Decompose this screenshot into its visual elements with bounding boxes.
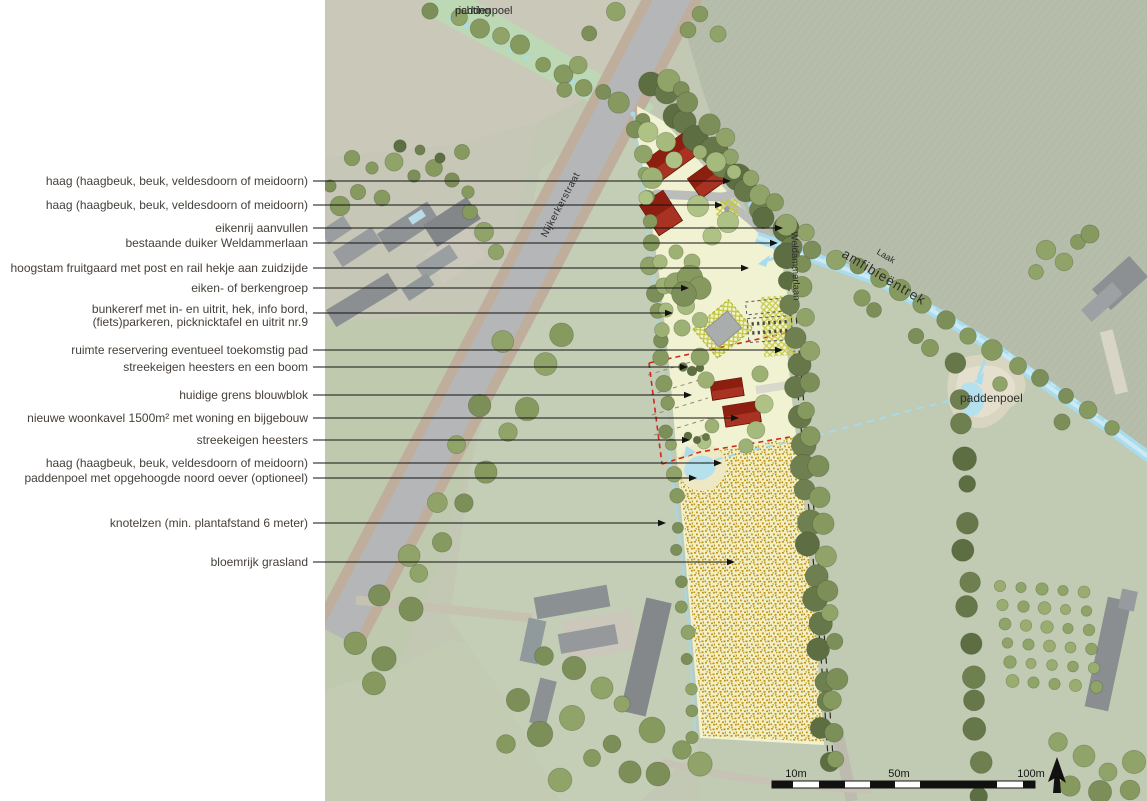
annotation-label-line: streekeigen heesters en een boom [0,361,308,374]
annotation-label: streekeigen heesters en een boom [0,361,308,374]
annotation-label-line: huidige grens blouwblok [0,389,308,402]
annotation-label-line: bunkererf met in- en uitrit, hek, info b… [0,303,308,316]
annotation-label: paddenpoel met opgehoogde noord oever (o… [0,472,308,485]
annotation-label-line: streekeigen heesters [0,434,308,447]
annotation-label-line: hoogstam fruitgaard met post en rail hek… [0,262,308,275]
annotation-label-line: ruimte reservering eventueel toekomstig … [0,344,308,357]
annotation-label-line: haag (haagbeuk, beuk, veldesdoorn of mei… [0,175,308,188]
annotation-label: knotelzen (min. plantafstand 6 meter) [0,517,308,530]
aerial-map-svg [325,0,1147,801]
annotation-label-line: bestaande duiker Weldammerlaan [0,237,308,250]
annotation-label-line: haag (haagbeuk, beuk, veldesdoorn of mei… [0,199,308,212]
annotation-label-line: knotelzen (min. plantafstand 6 meter) [0,517,308,530]
annotation-label-line: haag (haagbeuk, beuk, veldesdoorn of mei… [0,457,308,470]
annotation-label: huidige grens blouwblok [0,389,308,402]
annotation-label: haag (haagbeuk, beuk, veldesdoorn of mei… [0,175,308,188]
annotation-label-line: eiken- of berkengroep [0,282,308,295]
annotation-label-line: eikenrij aanvullen [0,222,308,235]
annotation-label-line: paddenpoel met opgehoogde noord oever (o… [0,472,308,485]
annotation-label: hoogstam fruitgaard met post en rail hek… [0,262,308,275]
annotation-label-line: (fiets)parkeren, picknicktafel en uitrit… [0,316,308,329]
landscape-plan-page: richting paddenpoel Nijkerkerstraat Weld… [0,0,1147,801]
annotation-label: eikenrij aanvullen [0,222,308,235]
annotation-label: haag (haagbeuk, beuk, veldesdoorn of mei… [0,457,308,470]
annotation-label: bunkererf met in- en uitrit, hek, info b… [0,303,308,329]
annotation-label: bloemrijk grasland [0,556,308,569]
annotation-label: streekeigen heesters [0,434,308,447]
annotation-label-line: bloemrijk grasland [0,556,308,569]
annotation-label: ruimte reservering eventueel toekomstig … [0,344,308,357]
annotation-label-line: nieuwe woonkavel 1500m² met woning en bi… [0,412,308,425]
annotation-label: nieuwe woonkavel 1500m² met woning en bi… [0,412,308,425]
annotation-label: bestaande duiker Weldammerlaan [0,237,308,250]
annotation-label: haag (haagbeuk, beuk, veldesdoorn of mei… [0,199,308,212]
annotation-label: eiken- of berkengroep [0,282,308,295]
site-plan-map [325,0,1147,801]
